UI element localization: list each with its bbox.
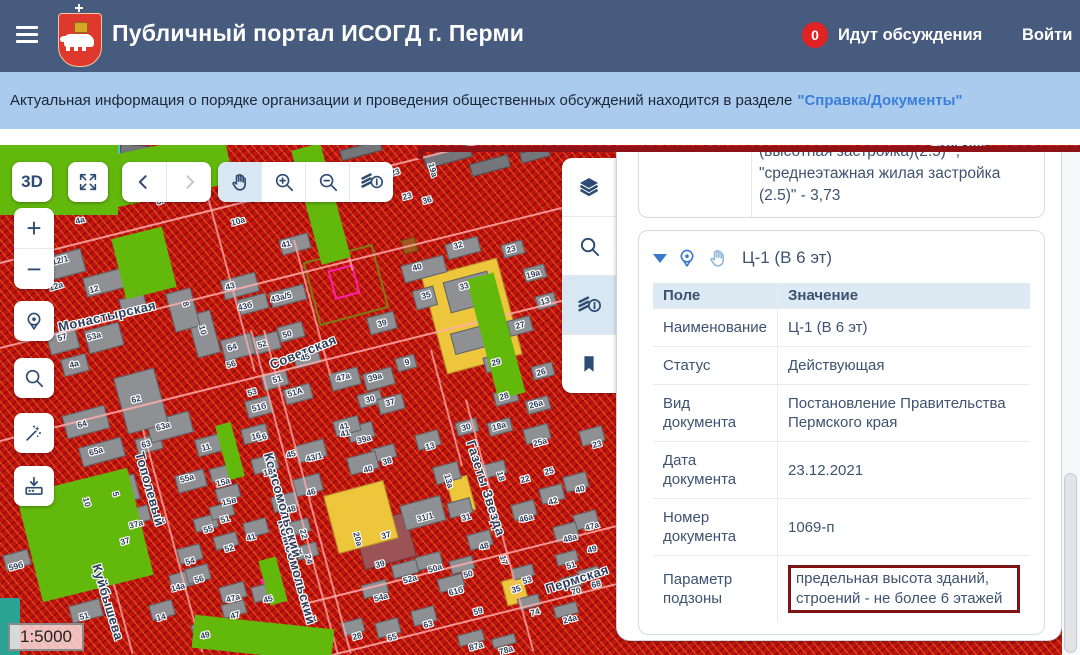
map-building-number: 54а <box>373 590 389 603</box>
map-building-number: 10а <box>230 214 246 227</box>
search-icon <box>578 235 601 258</box>
map-building-number: 74 <box>529 606 541 618</box>
map-building-number: 4а <box>74 214 86 226</box>
map-building <box>339 145 382 161</box>
attribute-panel: (высотная застройка)(2.5)" , "среднеэтаж… <box>616 152 1062 641</box>
layers-icon <box>577 175 601 199</box>
search-icon <box>23 367 45 389</box>
map-building-number: 46а <box>518 511 534 524</box>
map-building-number: 14а <box>170 580 186 593</box>
field-cell: Статус <box>653 347 778 385</box>
app-header: Публичный портал ИСОГД г. Перми 0 Идут о… <box>0 0 1080 72</box>
map-building-number: 61б <box>448 584 465 597</box>
panel-scrollbar-thumb[interactable] <box>1064 473 1077 653</box>
pan-tool-button[interactable] <box>218 162 262 202</box>
map-building-number: 23 <box>401 190 413 202</box>
layers-info-icon <box>360 170 384 194</box>
map-building-number: 56 <box>225 358 237 370</box>
highlight-box: предельная высота зданий, строений - не … <box>788 565 1020 613</box>
3d-mode-button[interactable]: 3D <box>12 162 52 202</box>
map-building <box>165 287 200 332</box>
value-column-header: Значение <box>778 283 1031 309</box>
layers-tab[interactable] <box>562 158 616 217</box>
page-title: Публичный портал ИСОГД г. Перми <box>112 20 524 47</box>
scale-indicator: 1:5000 <box>8 623 84 651</box>
zoom-out-icon <box>317 171 339 193</box>
table-header-row: Поле Значение <box>653 283 1030 309</box>
map-building-number: 70 <box>570 585 582 597</box>
panel-tool-rail <box>562 158 616 393</box>
zoom-out-tool-button[interactable] <box>306 162 350 202</box>
value-cell: 23.12.2021 <box>778 442 1031 499</box>
help-documents-link[interactable]: "Справка/Документы" <box>797 92 962 109</box>
magic-wand-button[interactable] <box>14 413 54 453</box>
download-icon <box>23 475 45 497</box>
zoom-in-tool-button[interactable] <box>262 162 306 202</box>
map-building-number: 39а <box>356 432 372 445</box>
fullscreen-button[interactable] <box>68 162 108 202</box>
map-building-number: 59 <box>472 605 484 617</box>
expand-icon <box>77 171 99 193</box>
value-cell: Ц-1 (В 6 эт) <box>778 309 1031 347</box>
value-cell: Постановление Правительства Пермского кр… <box>778 385 1031 442</box>
field-cell: Параметр подзоны <box>653 556 778 623</box>
value-cell: 1069-п <box>778 499 1031 556</box>
chevron-right-icon <box>179 172 199 192</box>
identify-results-tab[interactable] <box>562 276 616 335</box>
map-building-number: 87а <box>468 639 484 652</box>
back-button[interactable] <box>122 162 167 202</box>
map-tools <box>218 162 393 202</box>
map-canvas[interactable]: ПетропавловскаяПермскаяГазеты ЗвездаКуйб… <box>0 145 1080 655</box>
3d-button-label: 3D <box>21 172 43 192</box>
identify-layers-button[interactable] <box>350 162 393 202</box>
map-search-button[interactable] <box>14 358 54 398</box>
map-building-number: 15в <box>221 494 238 507</box>
map-building-number: 18 <box>495 470 507 482</box>
map-building-number: 53 <box>246 386 258 398</box>
zoom-in-icon <box>273 171 295 193</box>
field-cell: Дата документа <box>653 442 778 499</box>
map-building-number: 36 <box>421 194 433 206</box>
hand-icon <box>229 171 251 193</box>
search-tab[interactable] <box>562 217 616 276</box>
collapse-icon[interactable] <box>653 254 667 263</box>
discussions-count-badge: 0 <box>802 22 828 48</box>
map-building-number: 25а <box>532 435 548 448</box>
field-cell: Наименование <box>653 309 778 347</box>
attribute-table: Поле Значение НаименованиеЦ-1 (В 6 эт)Ст… <box>653 283 1030 622</box>
map-building-number: 52а <box>402 572 418 585</box>
pan-to-feature-hand-icon[interactable] <box>707 247 729 269</box>
panel-scrollbar-track[interactable] <box>1062 152 1080 655</box>
map-building-number: 50 <box>462 568 474 580</box>
map-building-number: 22 <box>519 473 531 485</box>
forward-button[interactable] <box>167 162 211 202</box>
chevron-left-icon <box>134 172 154 192</box>
map-building-number: 59б <box>8 559 25 572</box>
value-cell: Действующая <box>778 347 1031 385</box>
map-building-number: 50а <box>427 561 443 574</box>
table-row: Параметр подзоныпредельная высота зданий… <box>653 556 1030 623</box>
cross-icon <box>75 4 83 12</box>
map-road <box>250 330 339 654</box>
perm-coat-of-arms-logo <box>58 4 100 66</box>
feature-title: Ц-1 (В 6 эт) <box>742 248 832 268</box>
table-row: НаименованиеЦ-1 (В 6 эт) <box>653 309 1030 347</box>
history-nav <box>122 162 211 202</box>
notice-bar: Актуальная информация о порядке организа… <box>0 72 1080 129</box>
field-cell: Вид документа <box>653 385 778 442</box>
annotation-line <box>418 146 1080 152</box>
map-building-number: 48а <box>562 531 578 544</box>
field-column-header: Поле <box>653 283 778 309</box>
map-building-number: 24а <box>562 612 578 625</box>
value-cell: предельная высота зданий, строений - не … <box>778 556 1031 623</box>
table-row: Вид документаПостановление Правительства… <box>653 385 1030 442</box>
bookmark-icon <box>578 353 600 375</box>
zoom-to-feature-pin-icon[interactable] <box>676 247 698 269</box>
map-building <box>469 154 511 177</box>
location-pin-icon <box>23 310 45 332</box>
previous-feature-card: (высотная застройка)(2.5)" , "среднеэтаж… <box>638 152 1045 218</box>
magic-wand-icon <box>23 422 45 444</box>
previous-feature-value: (высотная застройка)(2.5)" , "среднеэтаж… <box>759 152 1039 207</box>
bear-icon <box>64 34 94 47</box>
notice-text: Актуальная информация о порядке организа… <box>10 92 792 109</box>
table-row: Номер документа1069-п <box>653 499 1030 556</box>
feature-card: Ц-1 (В 6 эт) Поле Значение НаименованиеЦ… <box>638 230 1045 635</box>
zoom-control: + − <box>14 208 54 289</box>
bookmarks-tab[interactable] <box>562 335 616 393</box>
zoom-out-button[interactable]: − <box>14 249 54 289</box>
table-row: Дата документа23.12.2021 <box>653 442 1030 499</box>
field-cell: Номер документа <box>653 499 778 556</box>
map-building-number: 25 <box>543 465 555 477</box>
map-building-number: 49 <box>586 543 598 555</box>
download-button[interactable] <box>14 466 54 506</box>
zoom-in-button[interactable]: + <box>14 208 54 249</box>
menu-icon[interactable] <box>16 26 38 43</box>
gospel-icon <box>74 22 88 33</box>
annotation-line-tick <box>418 146 423 159</box>
layers-info-icon <box>577 293 602 318</box>
locate-button[interactable] <box>14 301 54 341</box>
table-row: СтатусДействующая <box>653 347 1030 385</box>
map-building-number: 22 <box>298 528 310 540</box>
discussions-link[interactable]: Идут обсуждения <box>838 26 982 45</box>
login-button[interactable]: Войти <box>1022 26 1072 45</box>
